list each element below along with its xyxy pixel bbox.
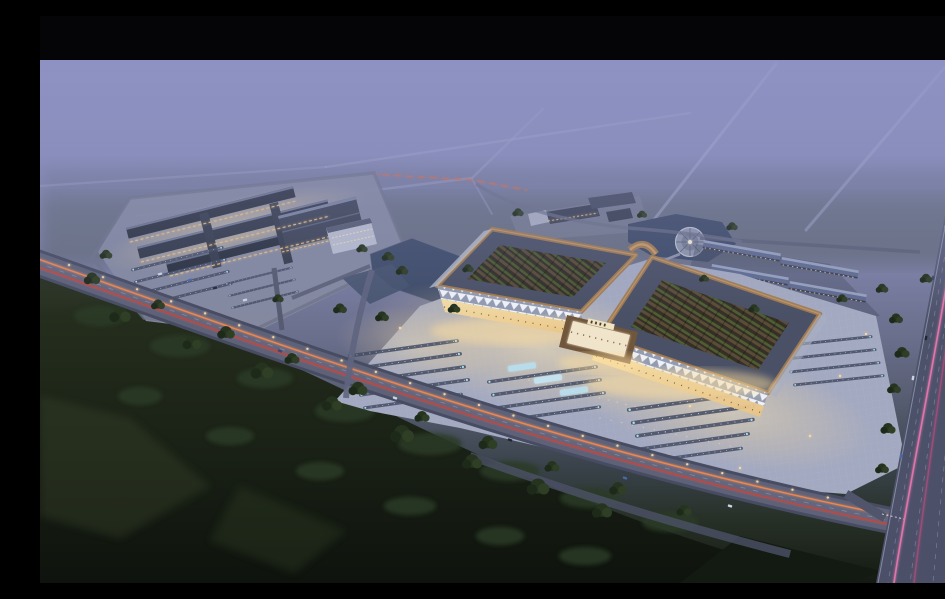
architectural-rendering: [40, 16, 945, 583]
letterbox-top: [40, 16, 945, 60]
fog-overlay: [40, 60, 945, 316]
